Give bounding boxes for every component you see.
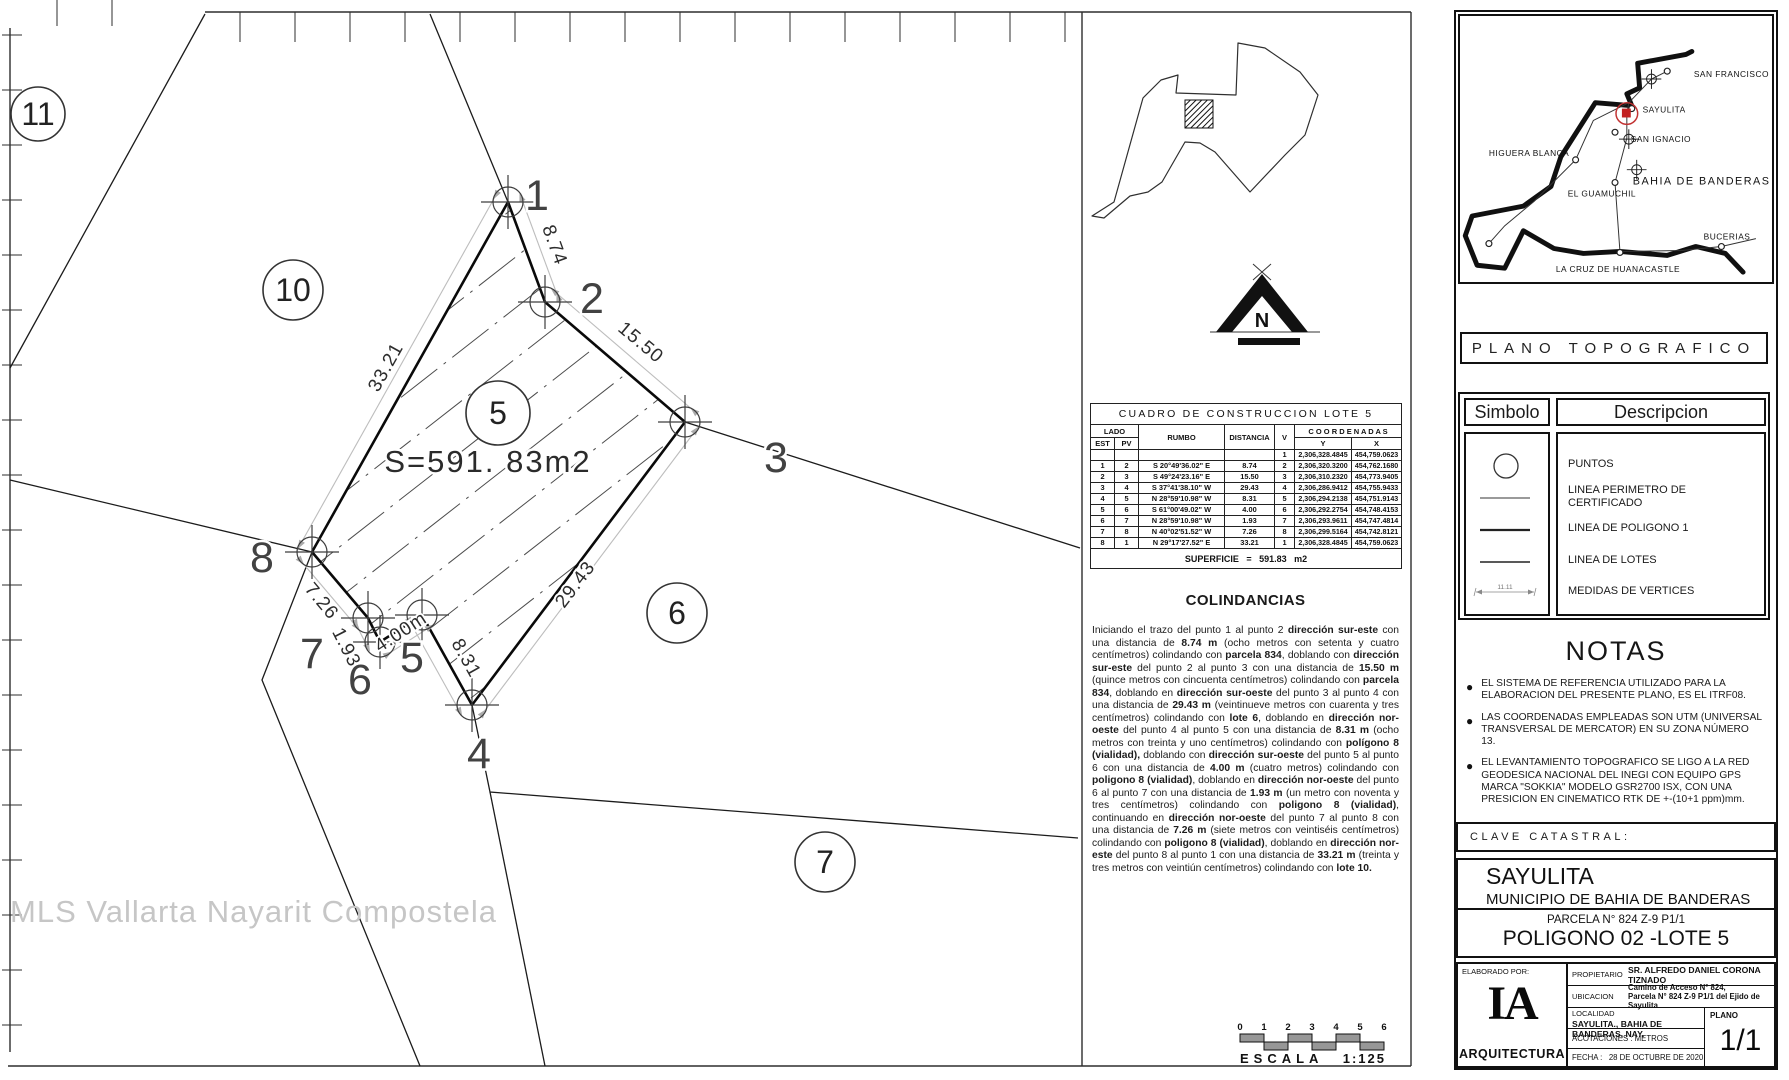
colindancias-section: COLINDANCIAS Iniciando el trazo del punt…: [1092, 592, 1399, 875]
north-letter: N: [1255, 310, 1269, 332]
dimension-label: 1.93: [327, 624, 364, 670]
legend-item-label: LINEA DE POLIGONO 1: [1568, 522, 1758, 535]
parcel-boundary-line: [472, 705, 1078, 838]
plano-label: PLANO: [1705, 1008, 1776, 1020]
coastline: [1465, 51, 1743, 272]
vertex-marker: [445, 678, 499, 732]
title-block-author-cell: ELABORADO POR: IA ARQUITECTURA: [1458, 964, 1568, 1066]
table-row: 45N 28°59'10.98" W8.3152,306,294.2138454…: [1091, 494, 1402, 505]
lot5-area-label: S=591. 83m2: [384, 444, 591, 479]
vertex-label: 8: [250, 534, 274, 582]
scale-bar-segment: [1264, 1042, 1288, 1050]
legend: Simbolo Descripcion 11.11 PUNTOSLINEA PE…: [1458, 392, 1770, 620]
vertex-label: 2: [580, 275, 604, 323]
location-parcela: PARCELA N° 824 Z-9 P1/1: [1458, 914, 1774, 926]
scale-bar: 0123456ESCALA1:125: [1237, 1022, 1386, 1066]
localidad-label: LOCALIDAD: [1572, 1009, 1704, 1018]
scale-bar-segment: [1312, 1042, 1336, 1050]
table-title: CUADRO DE CONSTRUCCION LOTE 5: [1091, 404, 1402, 425]
vertex-label: 1: [525, 172, 549, 220]
table-row: 78N 40°02'51.52" W7.2682,306,299.5164454…: [1091, 527, 1402, 538]
architect-logo-caption: ARQUITECTURA: [1458, 1047, 1566, 1061]
location-poligono: POLIGONO 02 -LOTE 5: [1458, 927, 1774, 951]
note-item: ●EL SISTEMA DE REFERENCIA UTILIZADO PARA…: [1462, 678, 1776, 703]
bullet-icon: ●: [1466, 761, 1473, 771]
scale-tick-label: 2: [1285, 1022, 1290, 1033]
escala-label: ESCALA: [1240, 1051, 1323, 1066]
town-point: [1612, 180, 1618, 186]
propietario-label: PROPIETARIO: [1568, 970, 1628, 979]
col-est: EST: [1091, 438, 1115, 450]
lot-number-circle: 5: [466, 381, 530, 445]
town-point: [1664, 68, 1670, 74]
plano-title: PLANO TOPOGRAFICO: [1472, 340, 1756, 357]
construction-table: CUADRO DE CONSTRUCCION LOTE 5 LADO RUMBO…: [1090, 403, 1402, 569]
town-label: PUNTA DE MITA: [1463, 281, 1532, 282]
fecha-label: FECHA :: [1572, 1053, 1602, 1062]
colindancias-title: COLINDANCIAS: [1092, 592, 1399, 609]
ubicacion-row: UBICACION Camino de Acceso N° 824, Parce…: [1568, 986, 1774, 1008]
puntos-symbol-icon: [1494, 454, 1518, 478]
scale-tick-label: 3: [1309, 1022, 1314, 1033]
vertex-label: 7: [300, 630, 324, 678]
watermark: MLS Vallarta Nayarit Compostela: [10, 894, 497, 929]
lot-number: 10: [275, 272, 311, 308]
scale-ratio: 1:125: [1343, 1051, 1386, 1066]
fecha-row: FECHA : 28 DE OCTUBRE DE 2020: [1568, 1049, 1704, 1066]
legend-descripcion-header: Descripcion: [1556, 398, 1766, 426]
col-distancia: DISTANCIA: [1225, 425, 1275, 450]
legend-item-label: MEDIDAS DE VERTICES: [1568, 585, 1758, 598]
legend-symbol-column: 11.11: [1464, 432, 1550, 616]
plano-title-box: PLANO TOPOGRAFICO: [1460, 332, 1768, 364]
scale-bar-segment: [1288, 1034, 1312, 1042]
lot-number-circle: 7: [795, 832, 855, 892]
region-map: SAN FRANCISCOSAYULITASAN IGNACIOHIGUERA …: [1458, 14, 1774, 284]
note-item: ●LAS COORDENADAS EMPLEADAS SON UTM (UNIV…: [1462, 712, 1776, 749]
elaborado-label: ELABORADO POR:: [1462, 967, 1529, 976]
topographic-plan-sheet: 1110567123456788.7415.5029.438.314.00m1.…: [0, 0, 1789, 1080]
col-y: Y: [1295, 438, 1352, 450]
scale-tick-label: 5: [1357, 1022, 1363, 1033]
town-label: BUCERIAS: [1704, 232, 1751, 242]
sayulita-marker: [1622, 109, 1631, 118]
col-pv: PV: [1115, 438, 1139, 450]
col-coordenadas: C O O R D E N A D A S: [1295, 425, 1402, 438]
table-row: 12S 20°49'36.02" E8.7422,306,320.3200454…: [1091, 461, 1402, 472]
parcel-boundary-line: [490, 792, 545, 1066]
legend-item-label: LINEA PERIMETRO DE CERTIFICADO: [1568, 484, 1758, 509]
measure-symbol-icon: 11.11: [1474, 584, 1536, 596]
colindancias-paragraph: Iniciando el trazo del punto 1 al punto …: [1092, 625, 1399, 875]
measure-sample-value: 11.11: [1497, 584, 1513, 591]
town-label: LA CRUZ DE HUANACASTLE: [1556, 264, 1680, 274]
col-rumbo: RUMBO: [1139, 425, 1225, 450]
notas-title: NOTAS: [1456, 636, 1776, 667]
note-text: LAS COORDENADAS EMPLEADAS SON UTM (UNIVE…: [1481, 712, 1765, 749]
table-row: 12,306,328.4845454,759.0623: [1091, 450, 1402, 461]
town-point: [1573, 157, 1579, 163]
town-point: [1612, 129, 1618, 135]
region-map-canvas: SAN FRANCISCOSAYULITASAN IGNACIOHIGUERA …: [1460, 16, 1772, 282]
plano-number: 1/1: [1705, 1024, 1776, 1058]
table-row: 34S 37°41'38.10" W29.4342,306,286.941245…: [1091, 483, 1402, 494]
title-block-rows: PROPIETARIO SR. ALFREDO DANIEL CORONA TI…: [1568, 964, 1774, 1066]
ubicacion-label: UBICACION: [1568, 992, 1628, 1001]
scale-bar-segment: [1336, 1034, 1360, 1042]
bullet-icon: ●: [1466, 716, 1473, 726]
town-label: HIGUERA BLANCA: [1489, 148, 1569, 158]
town-label: EL GUAMUCHIL: [1568, 188, 1636, 198]
bullet-icon: ●: [1466, 682, 1473, 692]
location-bottom: PARCELA N° 824 Z-9 P1/1 POLIGONO 02 -LOT…: [1458, 914, 1774, 951]
road-line: [1489, 103, 1629, 244]
legend-desc-list: PUNTOSLINEA PERIMETRO DE CERTIFICADOLINE…: [1556, 432, 1766, 616]
dimension-label: 7.26: [300, 579, 342, 624]
table-row: 67N 28°59'10.98" W1.9372,306,293.9611454…: [1091, 516, 1402, 527]
location-city: SAYULITA: [1486, 863, 1774, 890]
location-block: SAYULITA MUNICIPIO DE BAHIA DE BANDERAS …: [1456, 858, 1776, 958]
town-label: SAN FRANCISCO: [1694, 69, 1769, 79]
lot-number-circle: 10: [263, 260, 323, 320]
ejido-locator-outline: [1092, 43, 1318, 218]
vertex-label: 3: [764, 434, 788, 482]
lot-number: 6: [668, 595, 686, 631]
table-row: 23S 49°24'23.16" E15.5032,306,310.232045…: [1091, 472, 1402, 483]
town-point: [1617, 249, 1623, 255]
clave-catastral-box: CLAVE CATASTRAL:: [1456, 822, 1776, 852]
superficie-row: SUPERFICIE = 591.83 m2: [1091, 549, 1402, 569]
parcel-boundary-line: [685, 422, 1080, 548]
town-point: [1486, 241, 1492, 247]
road-line: [1615, 71, 1667, 251]
parcel-boundary-line: [10, 14, 205, 368]
scale-bar-segment: [1240, 1034, 1264, 1042]
plano-number-cell: PLANO 1/1: [1704, 1008, 1776, 1070]
legend-item-label: LINEA DE LOTES: [1568, 554, 1758, 567]
parcel-boundary-line: [430, 14, 508, 202]
architect-logo: IA: [1458, 976, 1566, 1031]
lot-number-circle: 11: [11, 87, 65, 141]
scale-tick-label: 4: [1333, 1022, 1339, 1033]
ubicacion-value: Camino de Acceso N° 824, Parcela N° 824 …: [1628, 983, 1774, 1010]
legend-item-label: PUNTOS: [1568, 458, 1758, 471]
construction-table-body: 12,306,328.4845454,759.062312S 20°49'36.…: [1091, 450, 1402, 549]
lot-number-circle: 6: [647, 583, 707, 643]
town-point: [1718, 244, 1724, 250]
localidad-row: LOCALIDAD SAYULITA., BAHIA DE BANDERAS, …: [1568, 1008, 1704, 1029]
notes-list: ●EL SISTEMA DE REFERENCIA UTILIZADO PARA…: [1462, 678, 1776, 816]
construction-table-section: CUADRO DE CONSTRUCCION LOTE 5 LADO RUMBO…: [1090, 403, 1401, 569]
dimension-label: 33.21: [364, 339, 408, 395]
scale-tick-label: 1: [1261, 1022, 1267, 1033]
col-lado: LADO: [1091, 425, 1139, 438]
note-text: EL SISTEMA DE REFERENCIA UTILIZADO PARA …: [1481, 678, 1765, 703]
legend-simbolo-header: Simbolo: [1464, 398, 1550, 426]
col-x: X: [1352, 438, 1402, 450]
table-row: 56S 61°00'49.02" W4.0062,306,292.2754454…: [1091, 505, 1402, 516]
vertex-label: 4: [467, 730, 491, 778]
locator-highlight-square: [1185, 100, 1213, 128]
scale-bar-segment: [1360, 1042, 1384, 1050]
town-label: BAHIA DE BANDERAS: [1633, 175, 1771, 187]
acotaciones-row: ACOTACIONES : METROS: [1568, 1029, 1704, 1049]
note-text: EL LEVANTAMIENTO TOPOGRAFICO SE LIGO A L…: [1481, 757, 1765, 806]
dimension-label: 15.50: [614, 318, 668, 368]
col-v: V: [1275, 425, 1295, 450]
note-item: ●EL LEVANTAMIENTO TOPOGRAFICO SE LIGO A …: [1462, 757, 1776, 806]
north-arrow-icon: N: [1210, 264, 1320, 345]
town-label: SAYULITA: [1643, 105, 1686, 115]
legend-symbols-canvas: 11.11: [1466, 434, 1548, 614]
lot-number: 11: [21, 96, 54, 132]
table-row: 81N 29°17'27.52" E33.2112,306,328.484545…: [1091, 538, 1402, 549]
scale-tick-label: 6: [1381, 1022, 1386, 1033]
scale-tick-label: 0: [1237, 1022, 1242, 1033]
dimension-label: 8.74: [537, 222, 571, 268]
propietario-value: SR. ALFREDO DANIEL CORONA TIZNADO: [1628, 965, 1774, 985]
location-municipio: MUNICIPIO DE BAHIA DE BANDERAS: [1486, 891, 1774, 908]
fecha-value: 28 DE OCTUBRE DE 2020: [1609, 1053, 1703, 1062]
location-top: SAYULITA MUNICIPIO DE BAHIA DE BANDERAS: [1458, 860, 1774, 910]
title-block: ELABORADO POR: IA ARQUITECTURA PROPIETAR…: [1456, 962, 1776, 1068]
lot-number: 5: [489, 395, 507, 431]
town-label: SAN IGNACIO: [1631, 134, 1691, 144]
lot-number: 7: [816, 844, 834, 880]
